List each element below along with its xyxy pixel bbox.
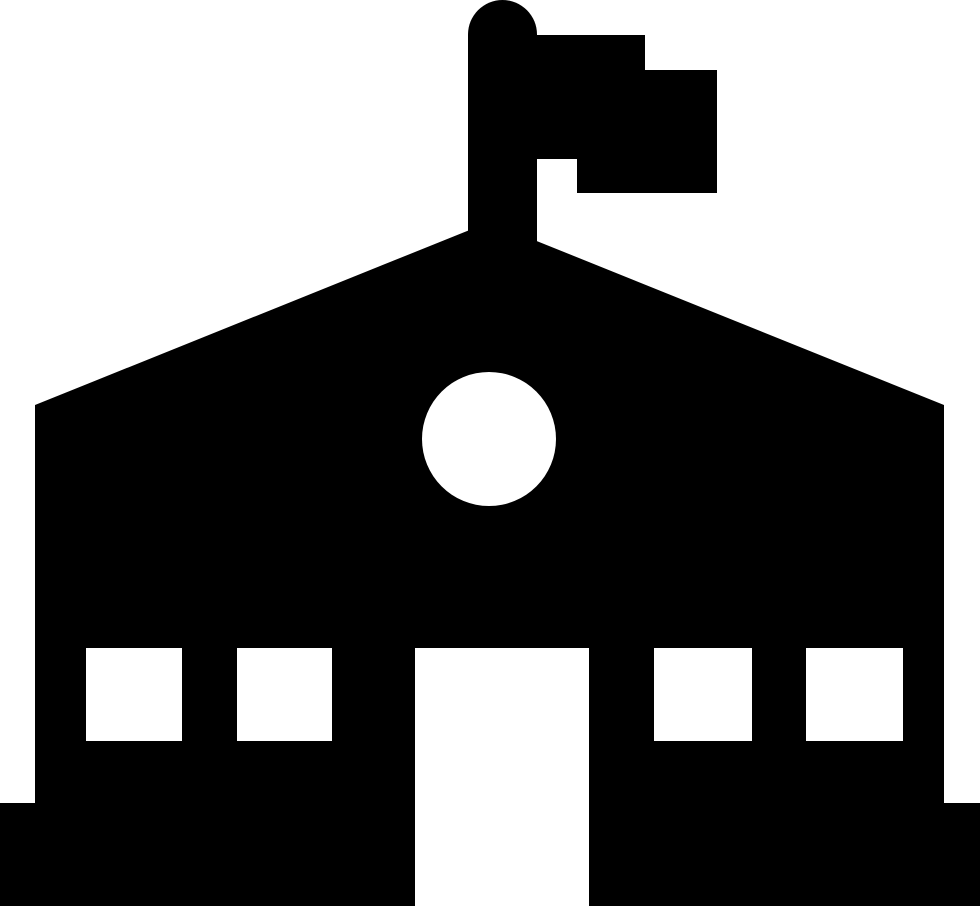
flagpole — [468, 0, 537, 300]
window-cutout-2 — [237, 648, 332, 741]
round-gable-window-cutout — [422, 372, 556, 506]
window-cutout-3 — [654, 648, 752, 741]
window-cutout-1 — [86, 648, 182, 741]
school-icon-canvas — [0, 0, 980, 910]
window-cutout-4 — [806, 648, 903, 741]
flag-icon — [537, 35, 717, 193]
door-cutout — [415, 648, 589, 910]
school-building-flag-icon — [0, 0, 980, 910]
